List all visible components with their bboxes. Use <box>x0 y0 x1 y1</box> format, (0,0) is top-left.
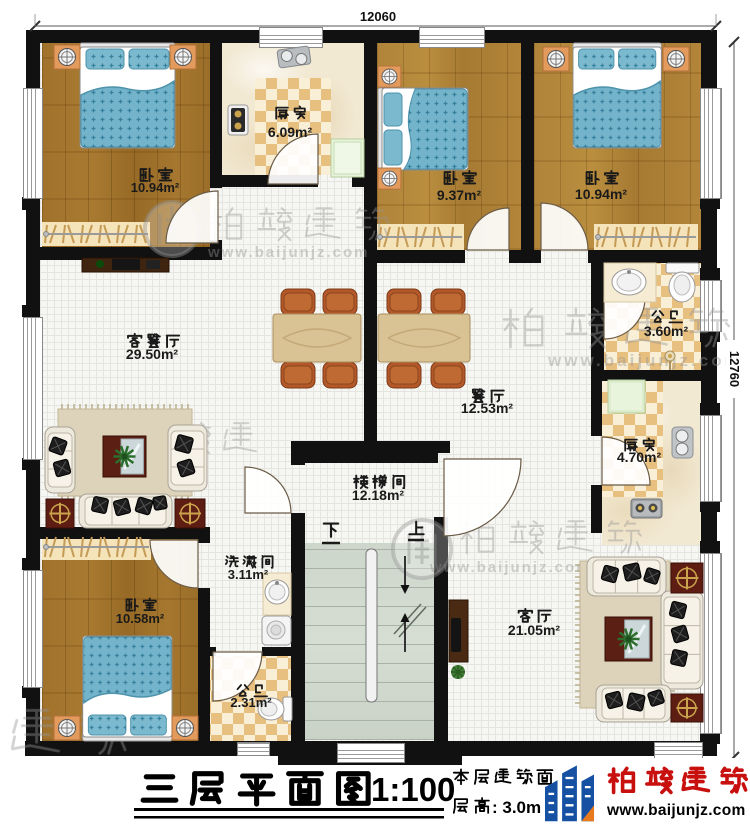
svg-text:12.18m²: 12.18m² <box>352 487 404 503</box>
svg-text:www.baijunjz.com: www.baijunjz.com <box>547 351 743 370</box>
svg-text:3.11m²: 3.11m² <box>228 567 269 582</box>
svg-text:4.70m²: 4.70m² <box>617 449 662 465</box>
svg-text:10.58m²: 10.58m² <box>116 611 165 626</box>
svg-text:1:100: 1:100 <box>371 771 455 808</box>
svg-text:2.31m²: 2.31m² <box>230 695 272 710</box>
svg-text:12760: 12760 <box>727 351 742 387</box>
svg-text:10.94m²: 10.94m² <box>575 186 627 202</box>
svg-text:6.09m²: 6.09m² <box>268 124 313 140</box>
svg-text:9.37m²: 9.37m² <box>437 187 482 203</box>
svg-text:21.05m²: 21.05m² <box>508 622 560 638</box>
svg-text:29.50m²: 29.50m² <box>126 346 178 362</box>
svg-text:www.baijunjz.com: www.baijunjz.com <box>207 244 369 261</box>
svg-text:www.baijunjz.com: www.baijunjz.com <box>606 802 746 819</box>
svg-text:10.94m²: 10.94m² <box>131 180 180 195</box>
svg-text:12.53m²: 12.53m² <box>461 400 513 416</box>
svg-text:: 3.0m: : 3.0m <box>492 798 541 817</box>
svg-text:www.baijunjz.com: www.baijunjz.com <box>429 559 591 576</box>
svg-text:3.60m²: 3.60m² <box>644 323 689 339</box>
svg-text:12060: 12060 <box>360 9 396 24</box>
